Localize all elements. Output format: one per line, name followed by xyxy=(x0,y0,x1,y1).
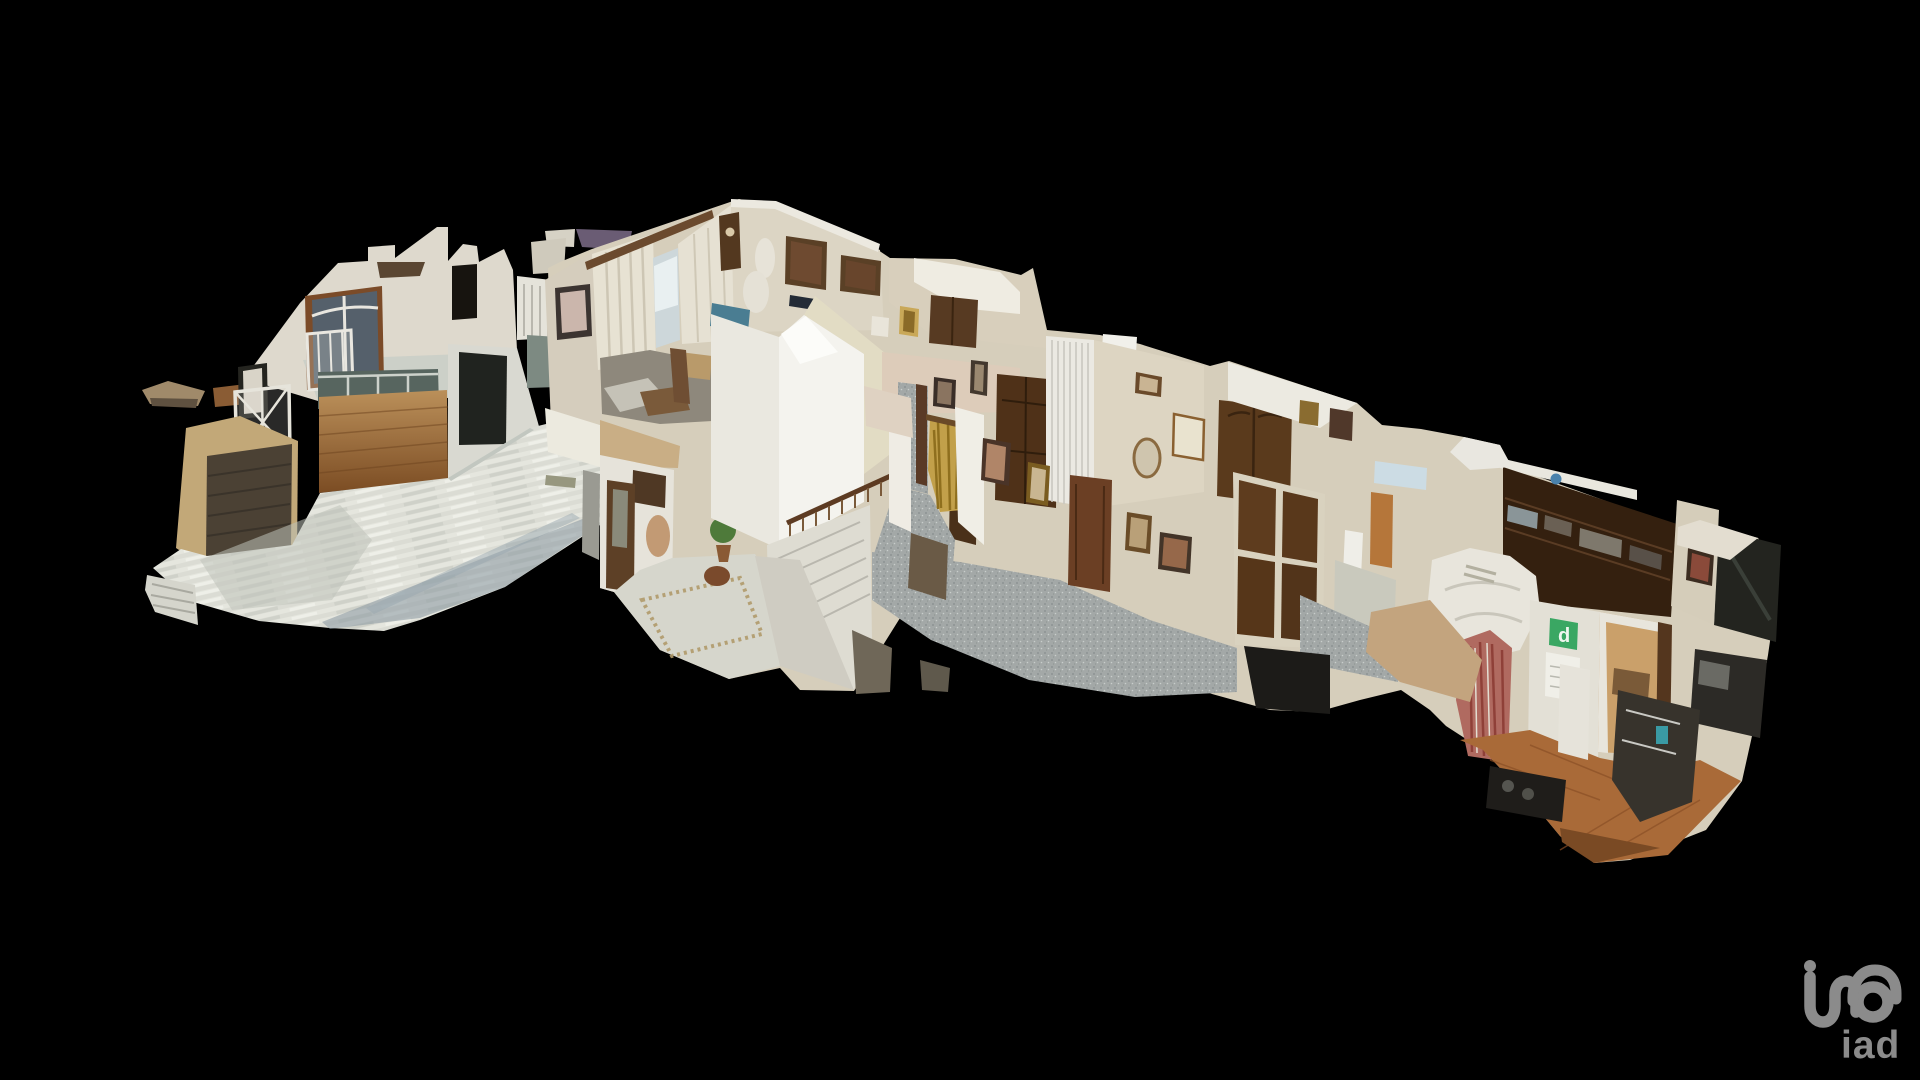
svg-text:iad: iad xyxy=(1841,1024,1900,1067)
svg-text:d: d xyxy=(1558,625,1570,647)
